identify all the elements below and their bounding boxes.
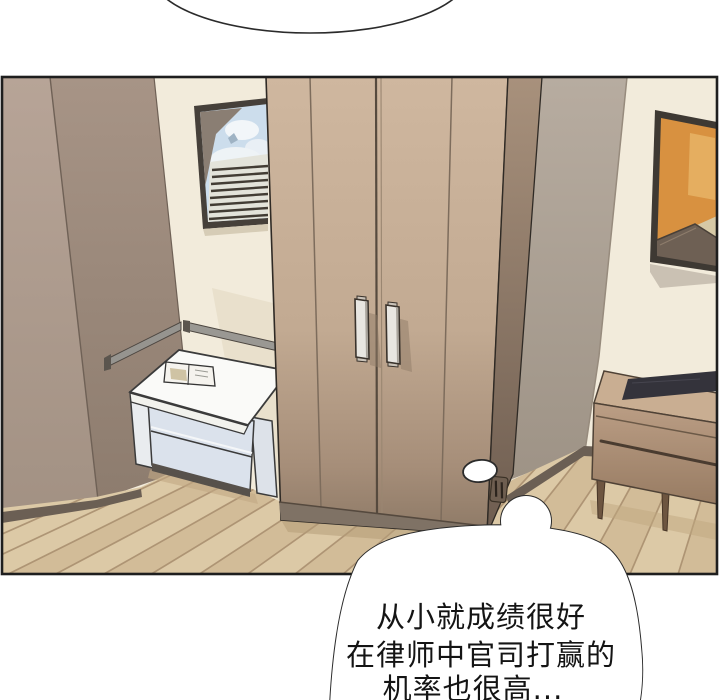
bubble-line-2: 在律师中官司打赢的 [346, 638, 616, 672]
door-seam [376, 77, 377, 513]
power-outlet [490, 476, 509, 503]
art-light [688, 133, 715, 200]
wardrobe [266, 77, 542, 548]
bubble-line-1: 从小就成绩很好 [376, 600, 586, 634]
wall-art [650, 110, 717, 288]
bubble-line-3: 机率也很高... [383, 672, 564, 700]
comic-page: 从小就成绩很好 在律师中官司打赢的 机率也很高... [0, 0, 720, 700]
window [194, 98, 272, 236]
comic-panel-scene: 从小就成绩很好 在律师中官司打赢的 机率也很高... [0, 0, 720, 700]
bubble-trail-medium-fill [501, 496, 551, 546]
